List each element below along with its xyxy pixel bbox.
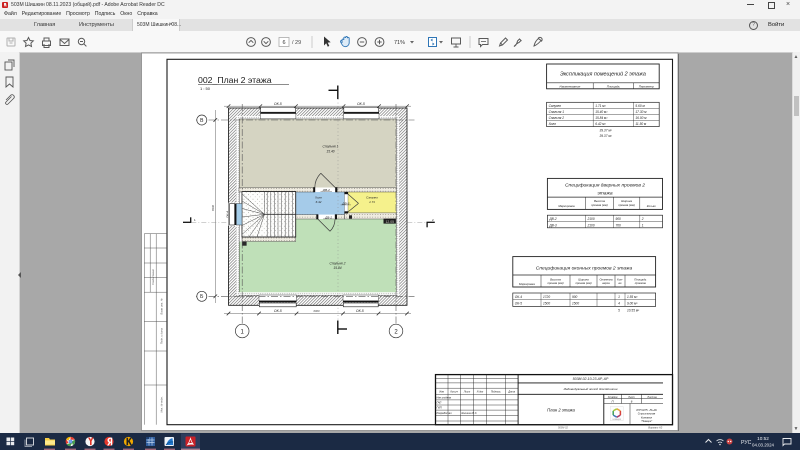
svg-text:2100: 2100 [587, 217, 595, 221]
svg-text:План 2 этажа: План 2 этажа [547, 408, 575, 413]
svg-text:1.55 м²: 1.55 м² [627, 295, 638, 299]
svg-text:Санузел: Санузел [549, 104, 562, 108]
svg-text:ГИП: ГИП [437, 406, 442, 410]
svg-text:1500: 1500 [543, 302, 550, 306]
svg-text:Изм: Изм [439, 391, 444, 394]
svg-text:5.60 м: 5.60 м [635, 104, 645, 108]
svg-text:Площадь: Площадь [607, 84, 620, 88]
svg-text:1 : 50: 1 : 50 [200, 86, 211, 91]
svg-text:Спальня 2: Спальня 2 [549, 116, 565, 120]
svg-text:НОВАЦИЯ: НОВАЦИЯ [613, 418, 622, 421]
svg-text:6000: 6000 [314, 309, 320, 313]
svg-text:Кол.уч: Кол.уч [450, 391, 458, 394]
svg-text:Формат А3: Формат А3 [648, 426, 663, 430]
svg-text:этажа: этажа [597, 191, 613, 196]
svg-text:1: 1 [642, 224, 644, 228]
svg-text:ОК-5: ОК-5 [356, 309, 364, 313]
svg-text:Взам. инв. №: Взам. инв. № [160, 298, 164, 314]
svg-text:04.03.2024: 04.03.2024 [752, 443, 775, 448]
svg-text:ОК-5: ОК-5 [274, 309, 282, 313]
svg-text:9.00 м²: 9.00 м² [627, 302, 638, 306]
svg-text:5: 5 [618, 308, 620, 312]
svg-text:002_План 2 этажа: 002_План 2 этажа [198, 75, 272, 85]
svg-text:ОК-5: ОК-5 [274, 102, 282, 106]
svg-text:Периметр: Периметр [639, 84, 654, 88]
svg-text:Подпись: Подпись [491, 391, 502, 394]
svg-text:ИНН 0275...ЛЬ-АБ: ИНН 0275...ЛЬ-АБ [636, 409, 657, 412]
svg-text:Листов: Листов [646, 395, 657, 399]
svg-text:Наименование: Наименование [560, 84, 581, 88]
svg-text:РУС: РУС [741, 440, 752, 446]
svg-text:Лист: Лист [627, 395, 636, 399]
svg-text:Строительная: Строительная [638, 413, 656, 416]
svg-text:10.55 м²: 10.55 м² [627, 308, 640, 312]
svg-text:1.71 м²: 1.71 м² [595, 104, 606, 108]
svg-text:12.05: 12.05 [386, 220, 395, 224]
svg-text:503М-02: 503М-02 [558, 426, 568, 429]
svg-text:6900: 6900 [211, 205, 215, 211]
svg-text:700: 700 [616, 224, 622, 228]
svg-text:39.37 м²: 39.37 м² [600, 134, 613, 138]
svg-text:ГАП: ГАП [437, 401, 442, 405]
svg-text:Спальня 2: Спальня 2 [330, 261, 346, 265]
svg-text:15.40: 15.40 [326, 149, 334, 153]
svg-text:Стадия: Стадия [608, 395, 618, 399]
svg-text:15.84 м²: 15.84 м² [595, 116, 608, 120]
svg-text:16.00 м: 16.00 м [635, 116, 647, 120]
svg-text:проема (мм): проема (мм) [591, 203, 608, 207]
svg-text:Нач.отдела: Нач.отдела [437, 395, 452, 399]
svg-text:проема (мм): проема (мм) [547, 281, 563, 285]
svg-text:проема (мм): проема (мм) [618, 203, 635, 207]
svg-text:Инв. № подл.: Инв. № подл. [160, 396, 164, 412]
svg-text:верха: верха [602, 281, 610, 285]
svg-text:900: 900 [616, 217, 622, 221]
svg-text:503М-02-10.23-АР, АР: 503М-02-10.23-АР, АР [573, 377, 609, 381]
svg-text:15.84: 15.84 [333, 266, 341, 270]
svg-text:6.42 м²: 6.42 м² [595, 122, 606, 126]
svg-text:"Новация": "Новация" [641, 420, 652, 423]
svg-text:ДВ-3: ДВ-3 [548, 224, 556, 228]
svg-text:11.50 м: 11.50 м [635, 122, 647, 126]
svg-text:Дата: Дата [507, 391, 515, 394]
svg-text:Холл: Холл [548, 122, 557, 126]
svg-text:2100: 2100 [587, 224, 595, 228]
svg-text:ОК-4: ОК-4 [225, 211, 229, 218]
svg-text:39.37 м²: 39.37 м² [600, 129, 613, 133]
svg-text:Лист: Лист [463, 391, 470, 394]
svg-text:Индивидуальный жилой дом Шишки: Индивидуальный жилой дом Шишкин [564, 387, 618, 391]
svg-text:проемов: проемов [635, 281, 647, 285]
svg-text:1.71: 1.71 [369, 200, 375, 204]
svg-text:Маркировка: Маркировка [519, 282, 535, 286]
svg-text:Подп. и дата: Подп. и дата [160, 327, 164, 344]
svg-text:71%: 71% [394, 40, 405, 46]
svg-text:2: 2 [641, 217, 644, 221]
svg-text:17.30 м: 17.30 м [635, 110, 647, 114]
svg-text:ДВ-2: ДВ-2 [548, 217, 556, 221]
svg-text:Спальня 1: Спальня 1 [549, 110, 565, 114]
svg-text:6.42: 6.42 [316, 200, 322, 204]
svg-text:6: 6 [282, 40, 285, 46]
svg-text:1500: 1500 [572, 302, 579, 306]
svg-text:ОК-4: ОК-4 [515, 295, 522, 299]
svg-text:Согласовано: Согласовано [151, 269, 155, 285]
svg-text:10:52: 10:52 [757, 436, 769, 441]
svg-text:4: 4 [618, 302, 620, 306]
svg-text:ОК-5: ОК-5 [515, 302, 522, 306]
svg-text:900: 900 [572, 295, 578, 299]
svg-text:1720: 1720 [543, 295, 550, 299]
svg-text:Спецификация оконных проемов 2: Спецификация оконных проемов 2 этажа [536, 265, 633, 271]
svg-text:Спецификация дверных проемов 2: Спецификация дверных проемов 2 [565, 183, 645, 189]
svg-text:Шишкин В.С.: Шишкин В.С. [462, 411, 478, 415]
svg-text:/ 29: / 29 [292, 40, 301, 46]
svg-text:во: во [619, 281, 622, 285]
svg-text:Спальня 1: Спальня 1 [323, 145, 339, 149]
svg-text:N док: N док [477, 391, 484, 394]
svg-text:15.40 м²: 15.40 м² [595, 110, 608, 114]
svg-text:Компания: Компания [641, 416, 653, 419]
svg-text:Разработал: Разработал [437, 411, 453, 415]
svg-text:Маркировка: Маркировка [558, 204, 575, 208]
svg-text:ДВ-3: ДВ-3 [341, 201, 349, 205]
svg-text:Экспликация помещений 2 этажа: Экспликация помещений 2 этажа [560, 71, 646, 78]
svg-text:ОК-5: ОК-5 [357, 102, 365, 106]
svg-text:Кол-во: Кол-во [647, 204, 656, 208]
svg-text:1: 1 [618, 295, 620, 299]
svg-text:проема (мм): проема (мм) [575, 281, 591, 285]
